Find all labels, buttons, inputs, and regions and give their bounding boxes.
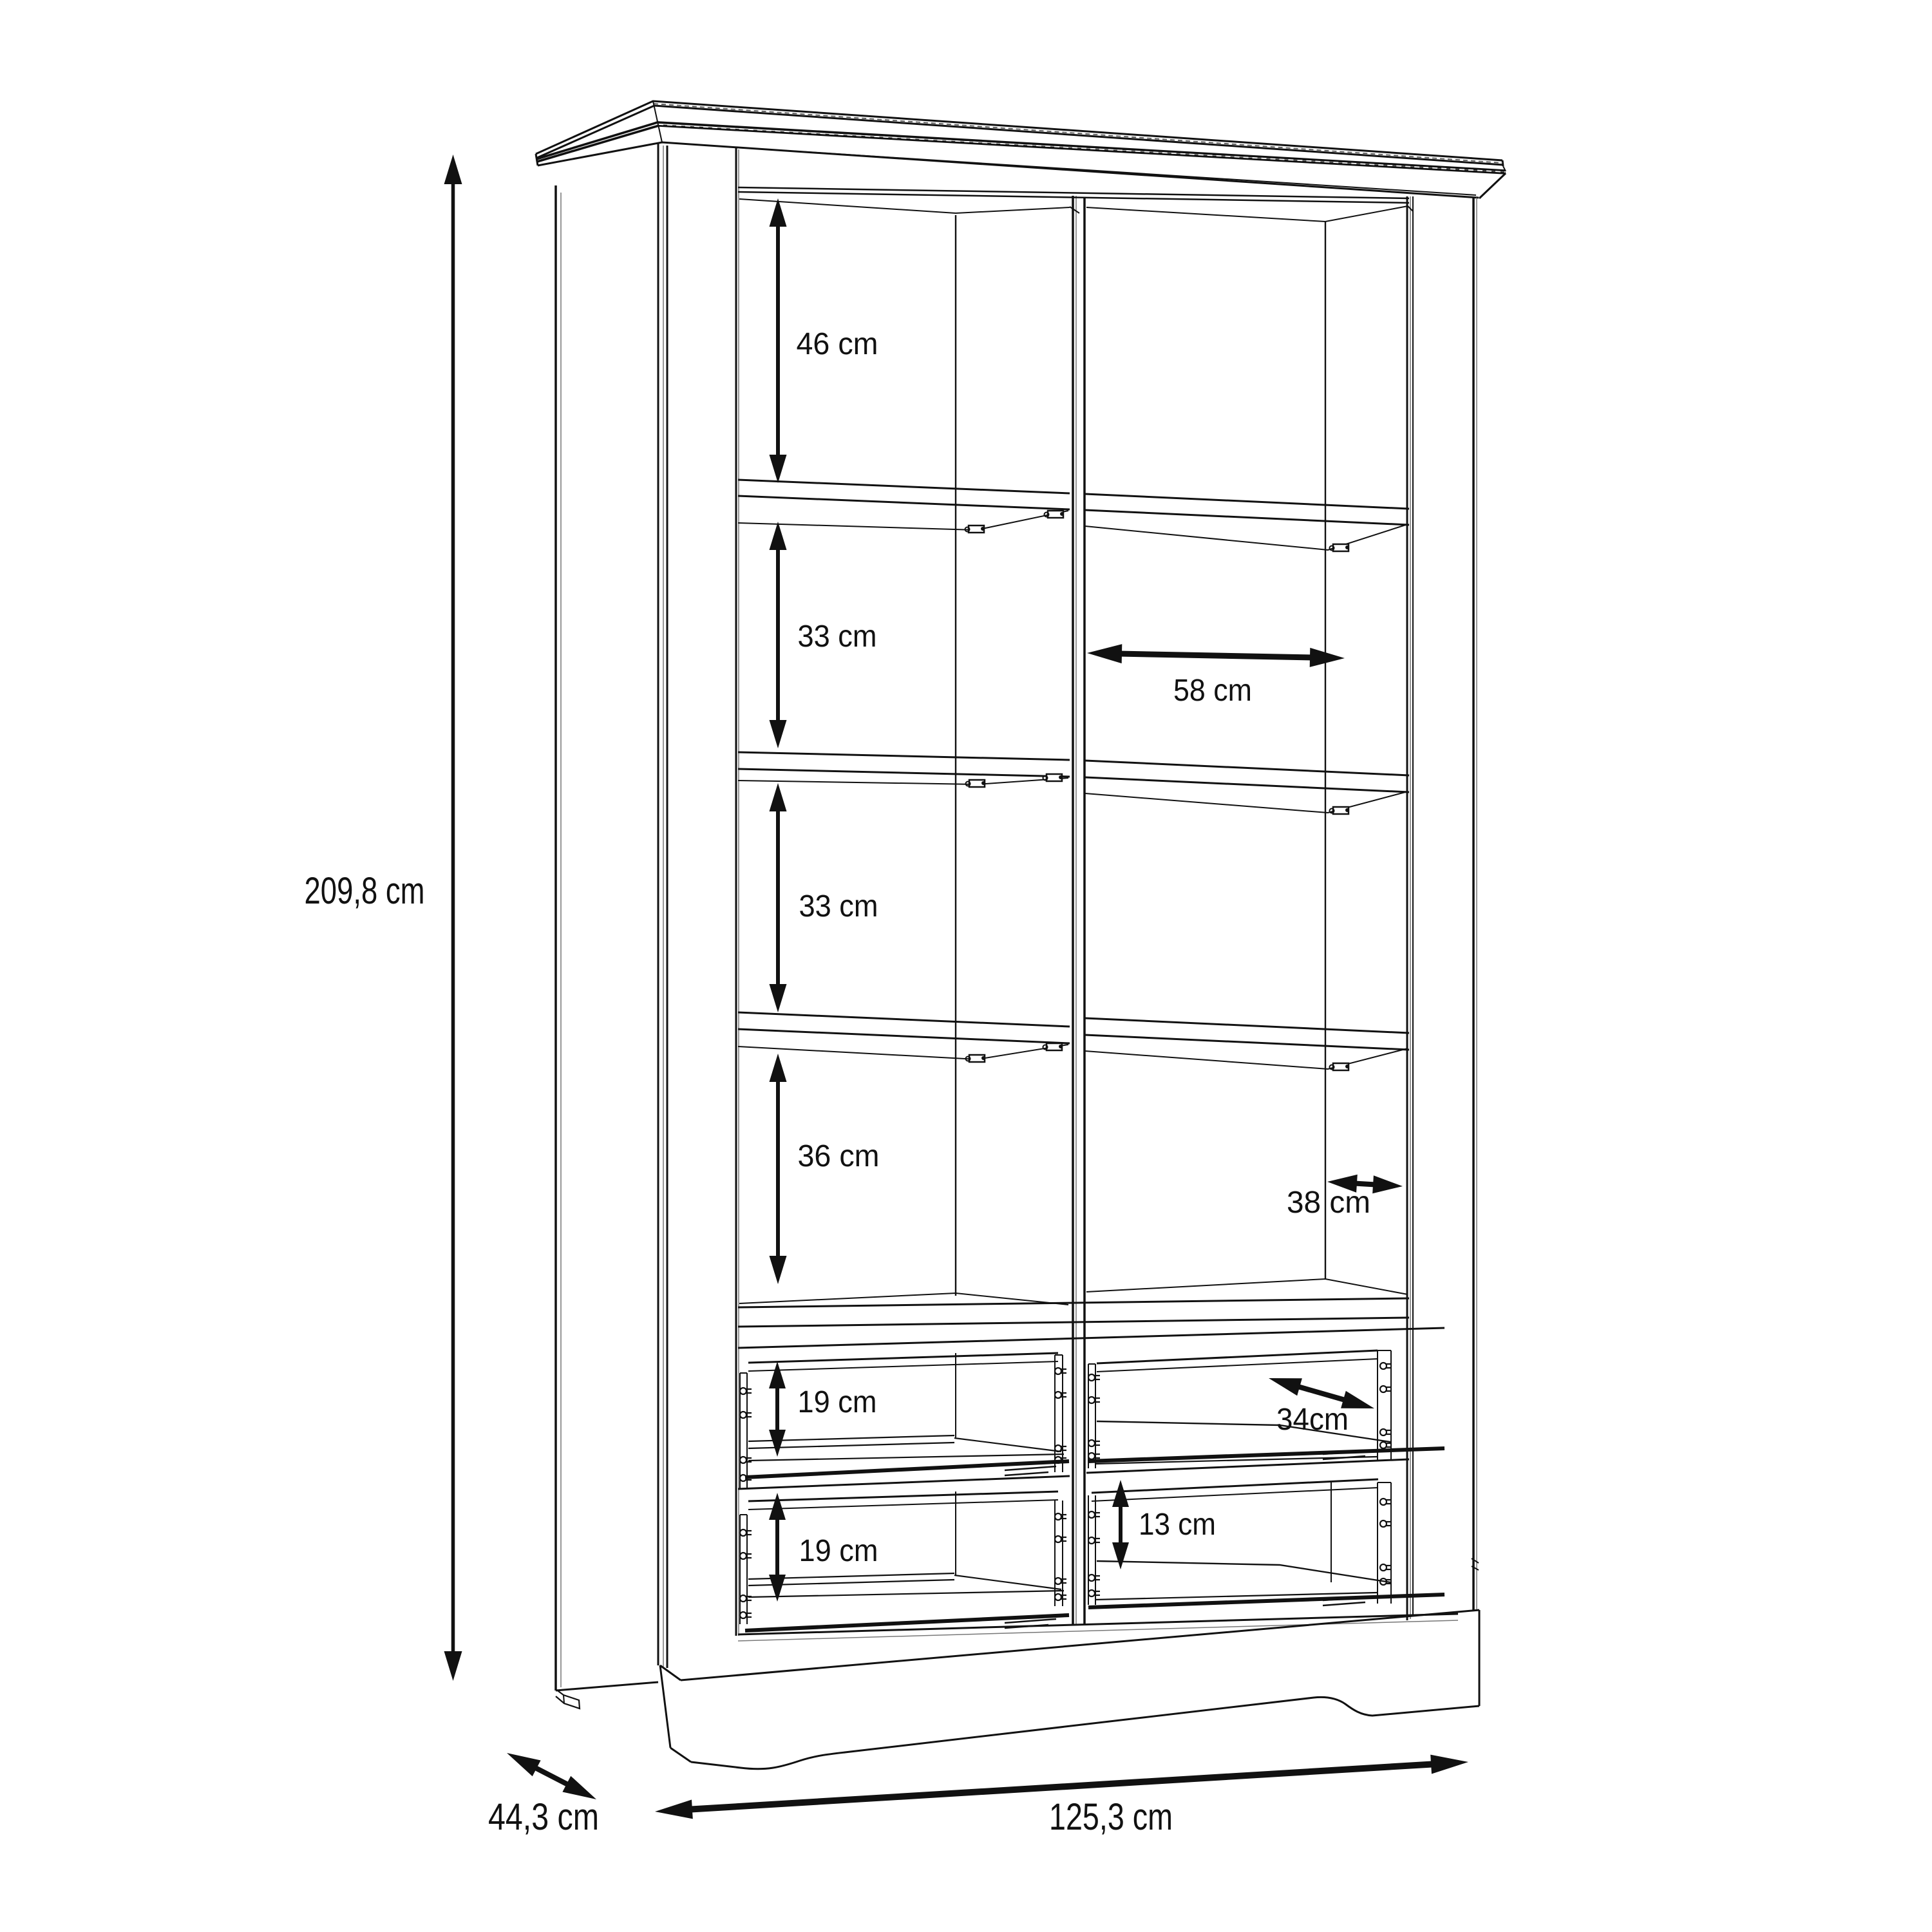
svg-text:38 cm: 38 cm bbox=[1287, 1186, 1370, 1220]
svg-text:44,3 cm: 44,3 cm bbox=[488, 1796, 599, 1838]
svg-text:46 cm: 46 cm bbox=[797, 327, 878, 361]
svg-text:125,3 cm: 125,3 cm bbox=[1049, 1796, 1173, 1838]
svg-text:209,8 cm: 209,8 cm bbox=[305, 870, 425, 912]
svg-text:33 cm: 33 cm bbox=[798, 620, 877, 654]
svg-text:36 cm: 36 cm bbox=[798, 1139, 880, 1173]
svg-text:34cm: 34cm bbox=[1276, 1403, 1349, 1437]
svg-text:13 cm: 13 cm bbox=[1139, 1508, 1216, 1542]
svg-text:19 cm: 19 cm bbox=[798, 1385, 877, 1419]
svg-text:19 cm: 19 cm bbox=[799, 1534, 878, 1568]
svg-text:33 cm: 33 cm bbox=[799, 889, 878, 923]
svg-text:58 cm: 58 cm bbox=[1173, 674, 1252, 708]
